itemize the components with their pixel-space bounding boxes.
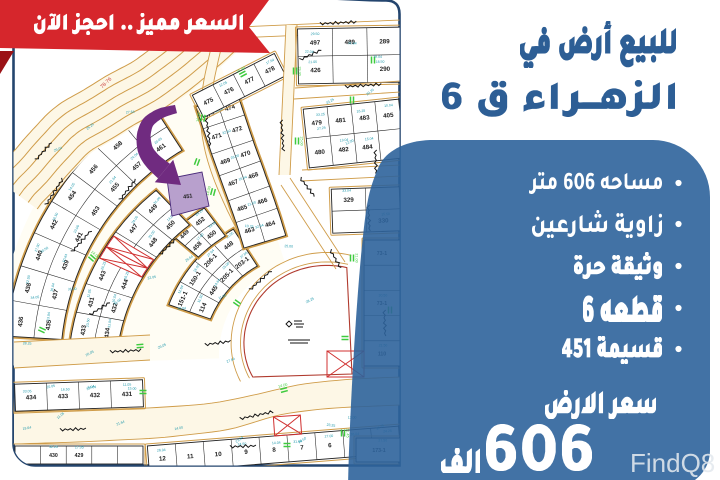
svg-text:28.04: 28.04: [177, 306, 186, 311]
svg-text:10: 10: [215, 451, 223, 459]
svg-text:21.05: 21.05: [308, 60, 317, 64]
svg-text:436: 436: [17, 316, 25, 328]
svg-text:28.25: 28.25: [23, 341, 32, 345]
svg-text:12: 12: [159, 455, 167, 463]
svg-text:483: 483: [359, 114, 371, 122]
svg-text:32.25: 32.25: [49, 445, 58, 449]
svg-text:451: 451: [183, 193, 193, 200]
svg-text:14.04: 14.04: [272, 441, 281, 446]
svg-text:290: 290: [380, 66, 391, 73]
svg-text:10.25: 10.25: [245, 224, 254, 229]
svg-text:27.00: 27.00: [324, 434, 333, 439]
svg-text:21.00: 21.00: [355, 253, 359, 263]
svg-text:430: 430: [49, 453, 58, 459]
svg-text:431: 431: [122, 391, 133, 398]
svg-text:429: 429: [75, 453, 84, 459]
svg-text:329: 329: [343, 197, 354, 204]
svg-text:426: 426: [310, 67, 321, 74]
svg-text:15.00: 15.00: [300, 136, 304, 146]
svg-text:482: 482: [338, 146, 350, 154]
svg-text:484: 484: [362, 143, 374, 151]
svg-text:15.00: 15.00: [128, 386, 137, 390]
svg-text:27.64: 27.64: [126, 110, 135, 115]
svg-text:481: 481: [335, 117, 347, 125]
svg-text:289: 289: [379, 38, 390, 45]
svg-text:432: 432: [90, 392, 101, 399]
svg-text:33.04: 33.04: [342, 189, 351, 193]
svg-text:31.64: 31.64: [348, 41, 357, 45]
svg-text:19.30: 19.30: [298, 66, 302, 76]
svg-text:18.04: 18.04: [373, 55, 382, 59]
svg-text:497: 497: [310, 40, 321, 47]
svg-text:22.04: 22.04: [305, 50, 314, 54]
svg-text:31.00: 31.00: [68, 287, 77, 291]
svg-text:25.00: 25.00: [284, 244, 293, 248]
svg-text:433: 433: [58, 393, 69, 400]
svg-text:33.05: 33.05: [23, 389, 32, 393]
svg-text:405: 405: [383, 112, 395, 120]
svg-text:11: 11: [187, 453, 195, 461]
svg-text:480: 480: [314, 149, 326, 157]
svg-text:FindQ8: FindQ8: [630, 448, 715, 478]
svg-text:29.50: 29.50: [311, 32, 320, 36]
svg-text:18.50: 18.50: [376, 60, 385, 64]
svg-text:11.45: 11.45: [346, 428, 350, 437]
svg-text:16.50: 16.50: [61, 387, 70, 391]
svg-text:434: 434: [26, 394, 37, 401]
svg-text:17.05: 17.05: [75, 445, 84, 449]
svg-text:26.04: 26.04: [157, 448, 166, 453]
